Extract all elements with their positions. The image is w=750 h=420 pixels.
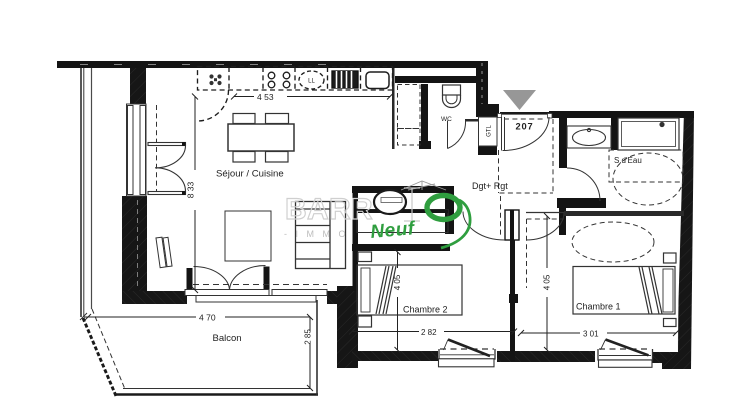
svg-text:2 85: 2 85 [304,329,313,345]
svg-text:Balcon: Balcon [213,333,242,344]
svg-text:4 05: 4 05 [543,274,552,290]
svg-text:B: B [285,193,307,226]
svg-text:207: 207 [516,122,534,132]
svg-text:Chambre 1: Chambre 1 [576,302,621,312]
svg-text:4 53: 4 53 [257,92,274,102]
svg-text:R: R [329,193,351,226]
svg-text:Chambre 2: Chambre 2 [403,305,448,315]
svg-text:4 05: 4 05 [393,274,402,290]
svg-text:R: R [351,193,373,226]
svg-text:3 01: 3 01 [583,329,599,338]
svg-text:-IMMO: -IMMO [284,229,354,239]
svg-text:Séjour / Cuisine: Séjour / Cuisine [216,169,284,180]
svg-text:2 82: 2 82 [421,328,437,337]
svg-text:Dgt+ Rgt: Dgt+ Rgt [472,181,508,191]
svg-text:LL: LL [308,78,315,84]
svg-text:Neuf: Neuf [370,218,417,243]
svg-text:8 33: 8 33 [186,181,196,198]
svg-text:A: A [307,193,329,226]
svg-text:S.d'Eau: S.d'Eau [614,156,642,165]
svg-text:GTL: GTL [487,125,493,137]
svg-text:4 70: 4 70 [199,313,216,323]
svg-text:WC: WC [441,116,452,123]
